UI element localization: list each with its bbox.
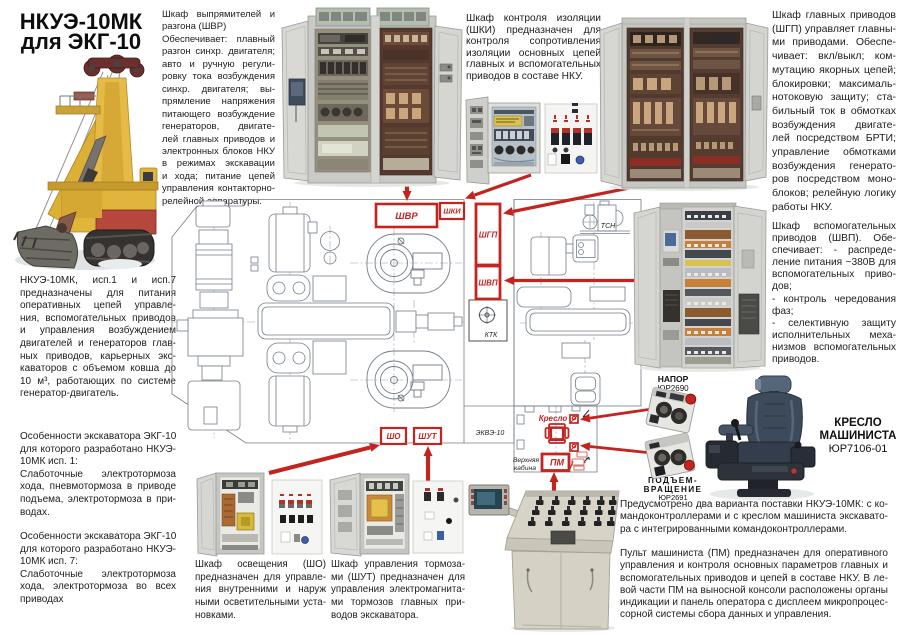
svg-text:ПМ: ПМ: [550, 458, 564, 468]
svg-text:Кресло: Кресло: [539, 414, 568, 423]
svg-text:КТК: КТК: [485, 332, 498, 339]
svg-text:ШУТ: ШУТ: [418, 432, 437, 441]
svg-text:кабина: кабина: [514, 464, 536, 472]
svg-text:ТСН: ТСН: [601, 223, 616, 230]
svg-text:ШО: ШО: [386, 432, 401, 441]
svg-text:ШВР: ШВР: [395, 211, 418, 222]
svg-text:ШВП: ШВП: [478, 278, 498, 287]
svg-text:Верхняя: Верхняя: [513, 457, 540, 464]
svg-text:ШКИ: ШКИ: [443, 207, 461, 216]
svg-text:ШГП: ШГП: [479, 230, 498, 239]
svg-text:ЭКВЭ-10: ЭКВЭ-10: [476, 430, 505, 437]
